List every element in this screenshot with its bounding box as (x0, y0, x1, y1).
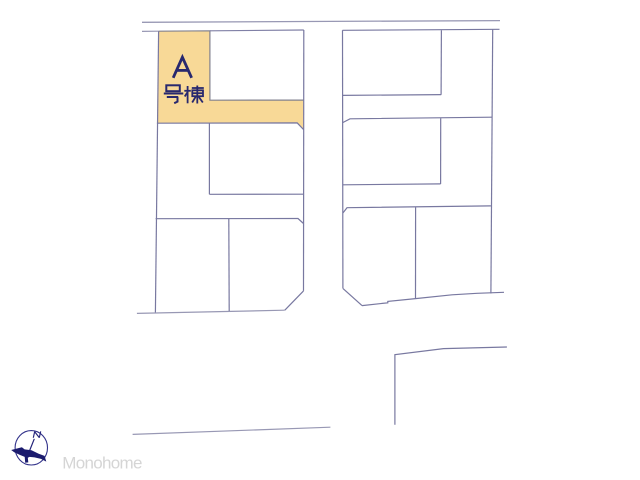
svg-text:Monohome: Monohome (62, 453, 142, 472)
